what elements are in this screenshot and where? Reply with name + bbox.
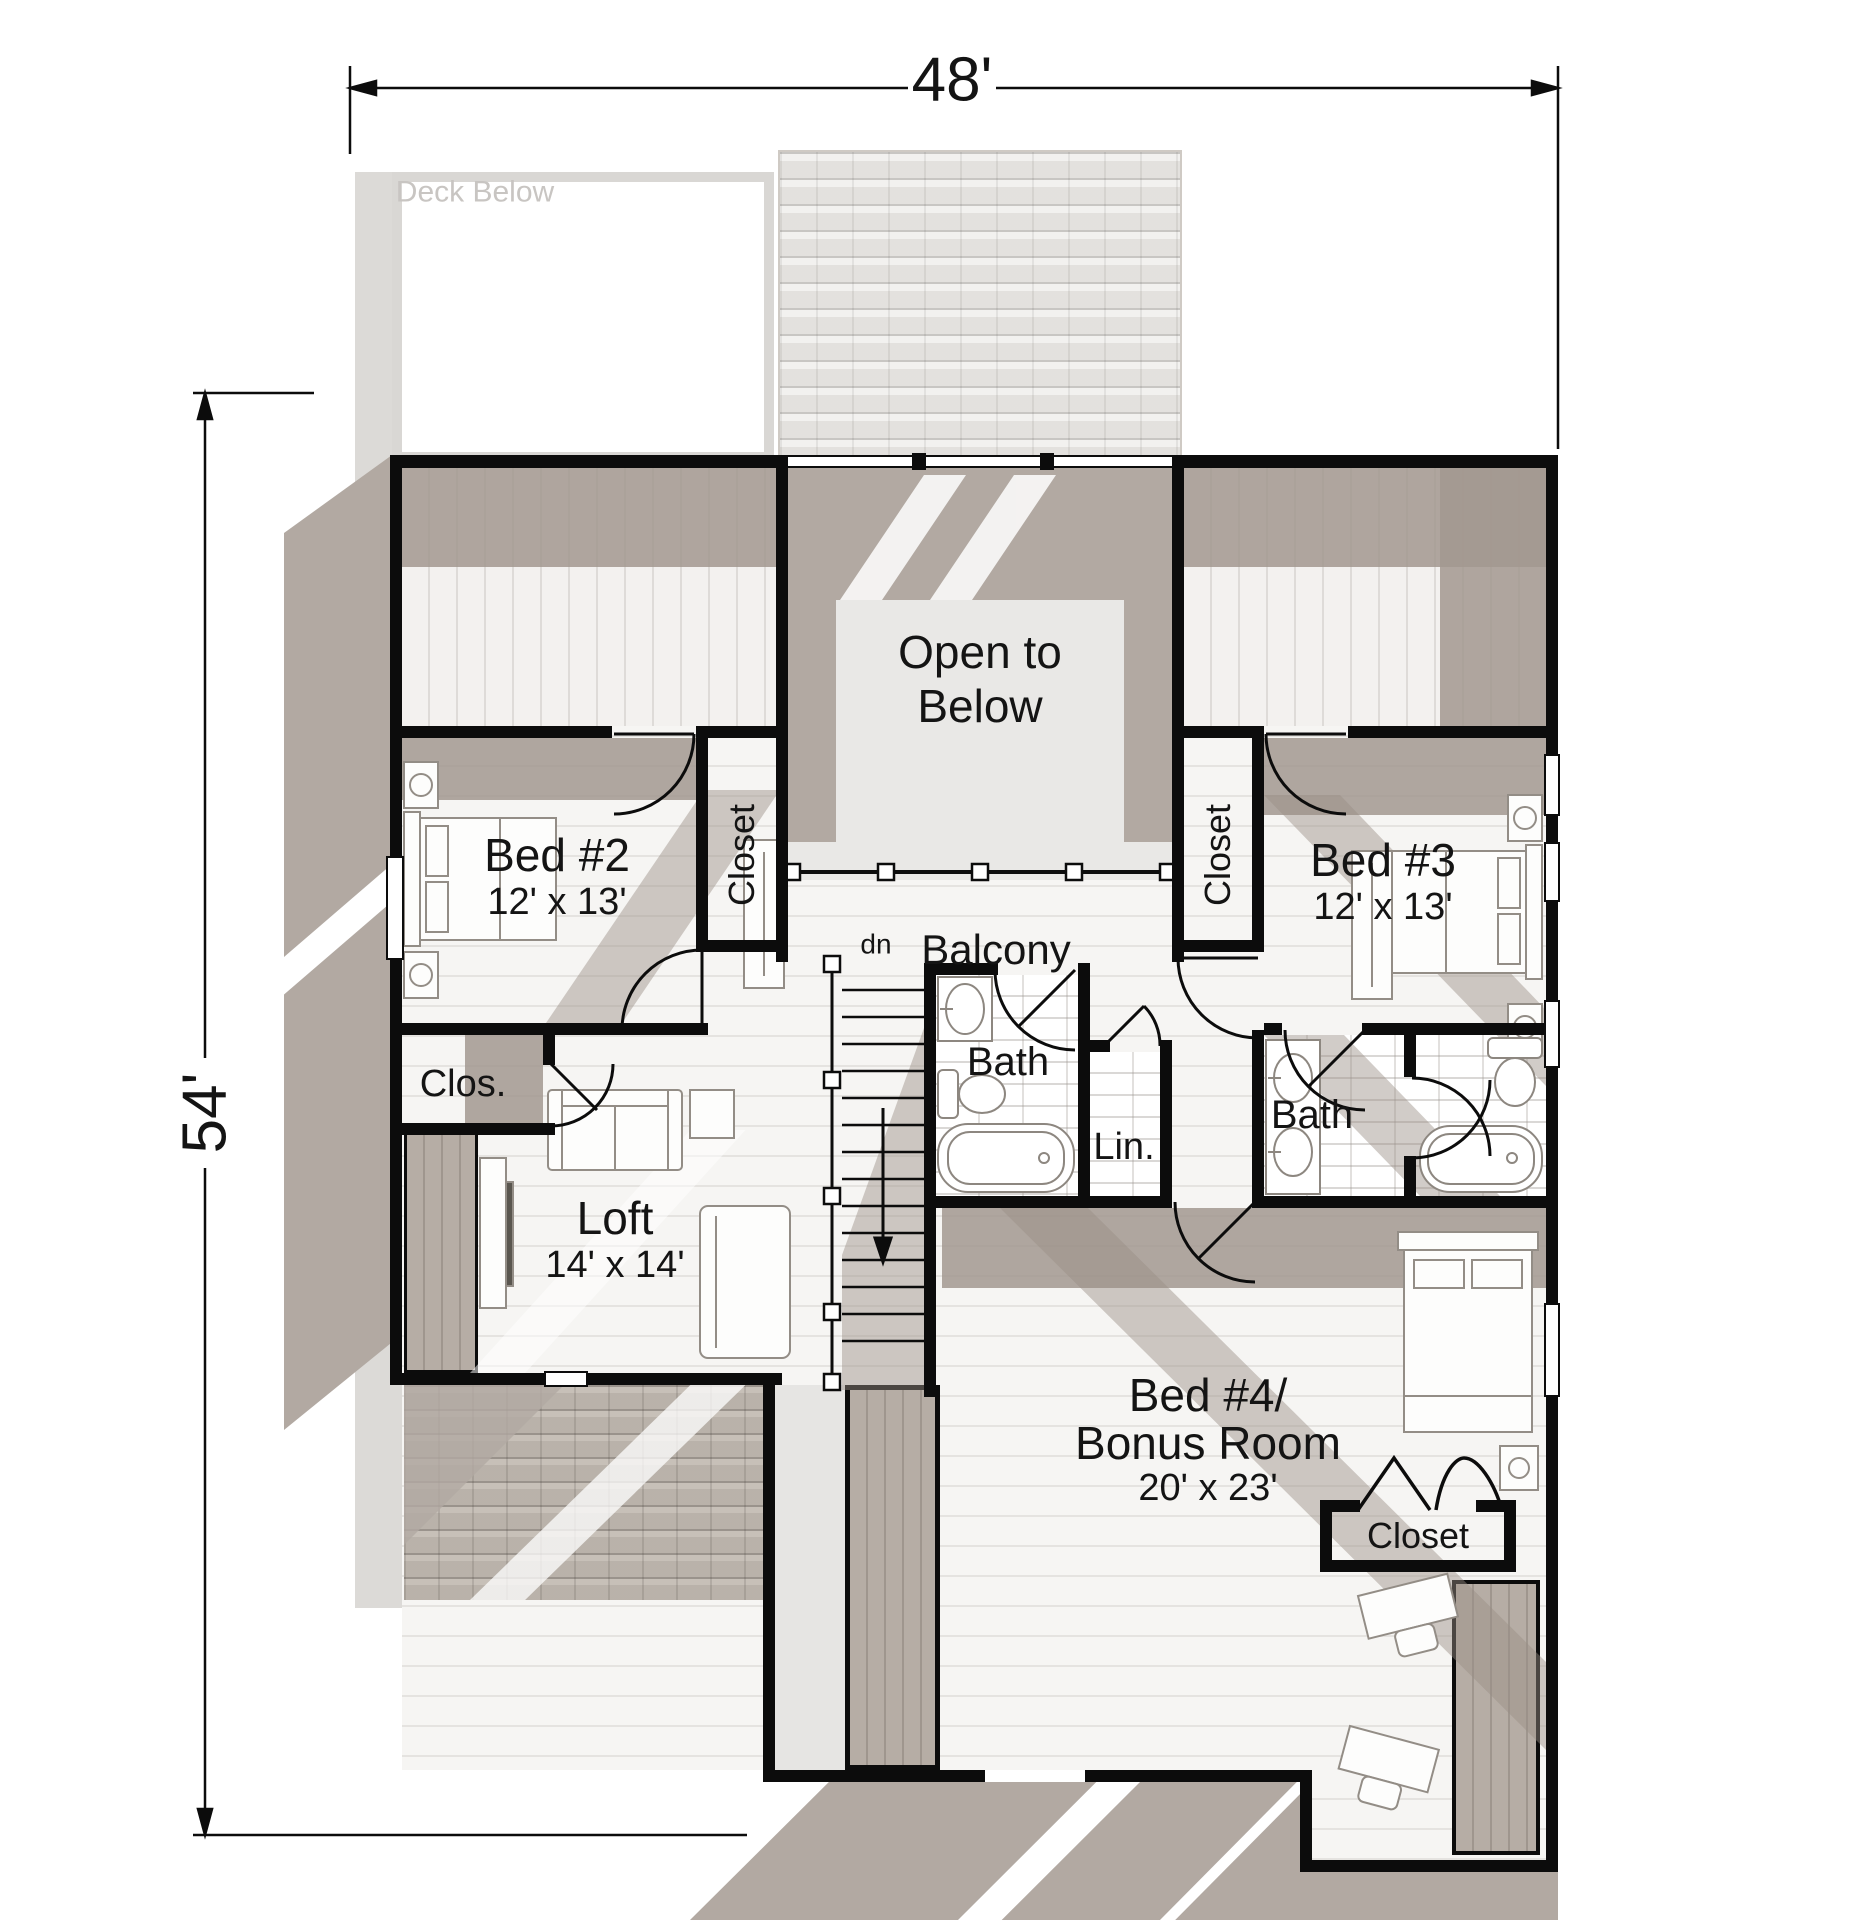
wall — [1172, 467, 1184, 962]
wall — [1078, 963, 1090, 1208]
wall — [1348, 726, 1558, 738]
dormer-roof — [778, 150, 1182, 462]
bed3-size: 12' x 13' — [1313, 888, 1452, 928]
attic-right-side-band — [1440, 467, 1546, 726]
bath-bonus-label: Bath — [1271, 1094, 1353, 1136]
wall — [763, 1373, 775, 1782]
stairwell-void — [775, 1385, 845, 1770]
wall — [588, 1373, 782, 1385]
wall — [1184, 940, 1264, 952]
wall — [696, 726, 788, 738]
wall — [1404, 1156, 1416, 1208]
wall — [1160, 1040, 1172, 1208]
wall — [543, 1035, 555, 1065]
closet-bonus-label: Closet — [1367, 1517, 1469, 1555]
floor-plan: Deck Below — [0, 0, 1869, 1920]
wall — [696, 738, 708, 952]
open-below-floor-bottom — [788, 842, 1172, 880]
dim-width-label: 48' — [912, 47, 993, 112]
bed3-headwall-band — [1264, 738, 1546, 815]
wall — [1546, 455, 1558, 1872]
bed2-size: 12' x 13' — [487, 883, 626, 923]
bonus-wardrobe — [1452, 1580, 1540, 1855]
linen-label: Lin. — [1093, 1128, 1154, 1168]
wall — [1300, 1770, 1312, 1872]
bath-hall-floor — [936, 975, 1078, 1196]
balcony-label: Balcony — [921, 928, 1070, 972]
wall — [1362, 1023, 1558, 1035]
bonus-label-1: Bed #4/ — [1129, 1371, 1288, 1419]
wall — [1252, 738, 1264, 952]
wall — [1320, 1560, 1516, 1572]
wall-post — [1040, 453, 1054, 470]
stairwell-wood-wall — [845, 1385, 940, 1770]
wall — [924, 1196, 1172, 1208]
open-below-label-1: Open to — [898, 628, 1062, 676]
wall — [1172, 726, 1264, 738]
stairs-down-label: dn — [860, 929, 891, 958]
window — [1544, 754, 1560, 816]
wall — [390, 726, 612, 738]
window — [386, 856, 404, 960]
linen-floor — [1090, 1052, 1160, 1196]
wall — [1300, 1860, 1558, 1872]
wall — [924, 963, 936, 1397]
wall — [390, 1023, 708, 1035]
bed3-label: Bed #3 — [1310, 836, 1456, 884]
bonus-top-band — [942, 1208, 1546, 1288]
wall — [1085, 1770, 1312, 1782]
dim-height-label: 54' — [170, 1073, 241, 1154]
closet-hall-label: Clos. — [420, 1065, 507, 1105]
deck-below-area — [392, 172, 774, 462]
bonus-label-2: Bonus Room — [1075, 1419, 1341, 1467]
wall — [776, 467, 788, 962]
wall — [1252, 1035, 1264, 1208]
window — [1544, 842, 1560, 902]
wall — [763, 1770, 985, 1782]
loft-size: 14' x 14' — [545, 1246, 684, 1286]
bed2-label: Bed #2 — [484, 831, 630, 879]
deck-below-label: Deck Below — [396, 176, 554, 208]
attic-left-band — [402, 467, 776, 567]
bonus-size: 20' x 23' — [1138, 1469, 1277, 1509]
dormer-wall-opening — [788, 455, 1172, 468]
loft-label: Loft — [577, 1194, 654, 1242]
closet-bed2-label: Closet — [721, 804, 763, 906]
window — [544, 1371, 588, 1387]
closet-bed3-label: Closet — [1197, 804, 1239, 906]
bed2-headwall-band — [402, 738, 696, 800]
wall — [696, 940, 788, 952]
wall — [1090, 1040, 1110, 1052]
wall — [1404, 1035, 1416, 1077]
window — [1544, 1303, 1560, 1397]
window — [1544, 1000, 1560, 1068]
wall — [1264, 1023, 1282, 1035]
loft-media-wall — [404, 1130, 478, 1373]
wall — [390, 1373, 544, 1385]
bath-hall-label: Bath — [967, 1041, 1049, 1083]
wall-post — [912, 453, 926, 470]
open-below-label-2: Below — [917, 682, 1042, 730]
wall — [390, 1123, 555, 1135]
